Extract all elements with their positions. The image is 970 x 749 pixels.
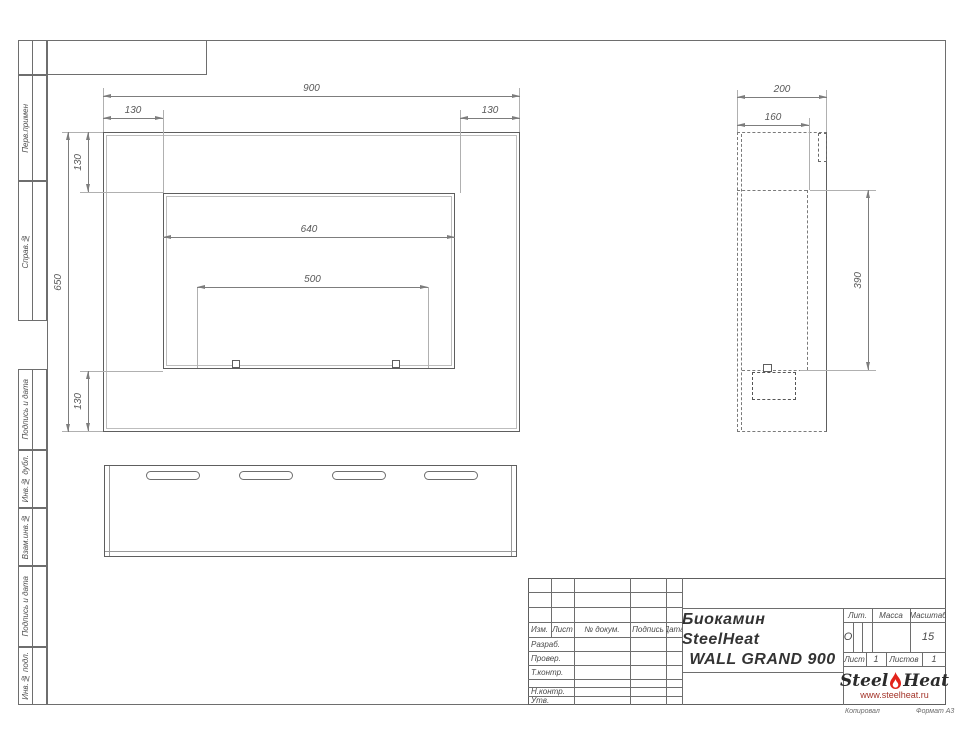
row-label-razrab: Разраб. [531,637,574,651]
strip-box-perv-primen: Перв.примен [18,75,47,181]
sheets-label: Листов [886,652,922,666]
dim-front-height-label: 650 [52,262,64,302]
vent-slot [239,471,293,480]
extension-line [80,192,163,193]
side-view-left-double-line [741,134,742,430]
row-label-utv: Утв. [531,696,574,705]
strip-label [19,41,33,74]
dim-front-left-offset-line [103,118,163,119]
dim-opening-width-label: 640 [163,224,455,235]
logo-steel-text: Steel [840,673,888,690]
dim-side-inner-depth-line [737,125,809,126]
sheet-label: Лист [843,652,866,666]
col-header-izm: Изм. [528,622,551,637]
side-view-firebox-line [807,190,808,370]
logo-box: Steel Heat www.steelheat.ru [843,666,946,705]
title-block-line [853,622,854,652]
strip-box-vzam-inv: Взам.инв.№ [18,508,47,566]
side-view-firebox-bottom-line [742,370,807,371]
product-title-line2: WALL GRAND 900 [689,650,835,670]
bottom-view-bottom-edge-line [105,551,516,552]
row-label-nkontr: Н.контр. [531,687,574,696]
burner-clip-left [232,360,240,368]
top-left-stamp-box [47,40,207,75]
extension-line [800,370,876,371]
scale-header: Масштаб [910,608,946,622]
dim-front-left-offset-label: 130 [103,105,163,116]
drawing-sheet: Перв.примен Справ.№ Подпись и дата Инв.№… [0,0,970,749]
dim-front-height-line [68,132,69,432]
strip-label: Перв.примен [19,76,33,180]
dim-burner-width-line [197,287,428,288]
dim-front-top-offset-label: 130 [72,147,84,177]
dim-front-bottom-offset-label: 130 [72,386,84,416]
dim-front-width-line [103,96,520,97]
strip-box-podpis-data-2: Подпись и дата [18,566,47,647]
dim-side-opening-height-label: 390 [852,260,864,300]
dim-burner-width-label: 500 [197,274,428,285]
title-block-line [528,679,682,680]
col-header-list: Лист [551,622,574,637]
side-view-burner-box [752,372,796,400]
dim-front-bottom-offset-line [88,371,89,431]
sheet-value: 1 [866,652,886,666]
dim-side-depth-label: 200 [737,84,827,95]
extension-line [460,110,461,193]
title-block-line [862,622,863,652]
side-view-shelf-line [737,190,807,191]
extension-line [163,110,164,193]
side-view-burner-tab [763,364,772,372]
extension-line [809,118,810,190]
col-header-data: Дата [666,622,682,637]
vent-slot [146,471,200,480]
dim-opening-width-line [163,237,455,238]
strip-box-inv-dubl: Инв.№ дубл. [18,450,47,508]
strip-box-sprav-no: Справ.№ [18,181,47,321]
extension-line [197,287,198,368]
extension-line [80,371,163,372]
sheets-value: 1 [922,652,946,666]
strip-label: Подпись и дата [19,370,33,449]
dim-side-depth-line [737,97,827,98]
dim-front-top-offset-line [88,132,89,192]
dim-side-opening-height-line [868,190,869,370]
product-title-line1: Биокамин SteelHeat [682,610,843,650]
lit-value: О [843,622,853,652]
footer-copy: Копировал [845,708,880,715]
strip-box-podpis-data-1: Подпись и дата [18,369,47,450]
steelheat-logo: Steel Heat [840,672,949,690]
dim-side-inner-depth-label: 160 [737,112,809,123]
strip-box-blank [18,40,47,75]
col-header-podpis: Подпись [630,622,666,637]
title-block-line [630,578,631,705]
footer-format: Формат А3 [916,708,954,715]
dim-front-right-offset-label: 130 [460,105,520,116]
dim-front-right-offset-line [460,118,520,119]
extension-line [428,287,429,368]
title-block-line [574,578,575,705]
flame-icon [889,672,902,690]
bottom-view-right-edge-line [511,466,512,556]
strip-label: Инв.№ подл. [19,648,33,704]
scale-value: 15 [910,622,946,652]
vent-slot [424,471,478,480]
mass-header: Масса [872,608,910,622]
side-view-bracket [818,133,827,162]
product-title: Биокамин SteelHeat WALL GRAND 900 [682,608,843,672]
logo-url: www.steelheat.ru [860,690,929,700]
logo-heat-text: Heat [903,673,949,690]
strip-label: Инв.№ дубл. [19,451,33,507]
row-label-prover: Провер. [531,651,574,665]
bottom-view-left-edge-line [109,466,110,556]
strip-label: Взам.инв.№ [19,509,33,565]
dim-front-width-label: 900 [103,83,520,94]
lit-header: Лит. [843,608,872,622]
title-block-line [528,607,682,608]
row-label-tkontr: Т.контр. [531,665,574,679]
strip-box-inv-podl: Инв.№ подл. [18,647,47,705]
title-block-line [666,578,667,705]
strip-label: Подпись и дата [19,567,33,646]
title-block-line [528,592,682,593]
burner-clip-right [392,360,400,368]
vent-slot [332,471,386,480]
col-header-dokum: № докум. [574,622,630,637]
title-block-line [682,672,843,673]
strip-label: Справ.№ [19,182,33,320]
